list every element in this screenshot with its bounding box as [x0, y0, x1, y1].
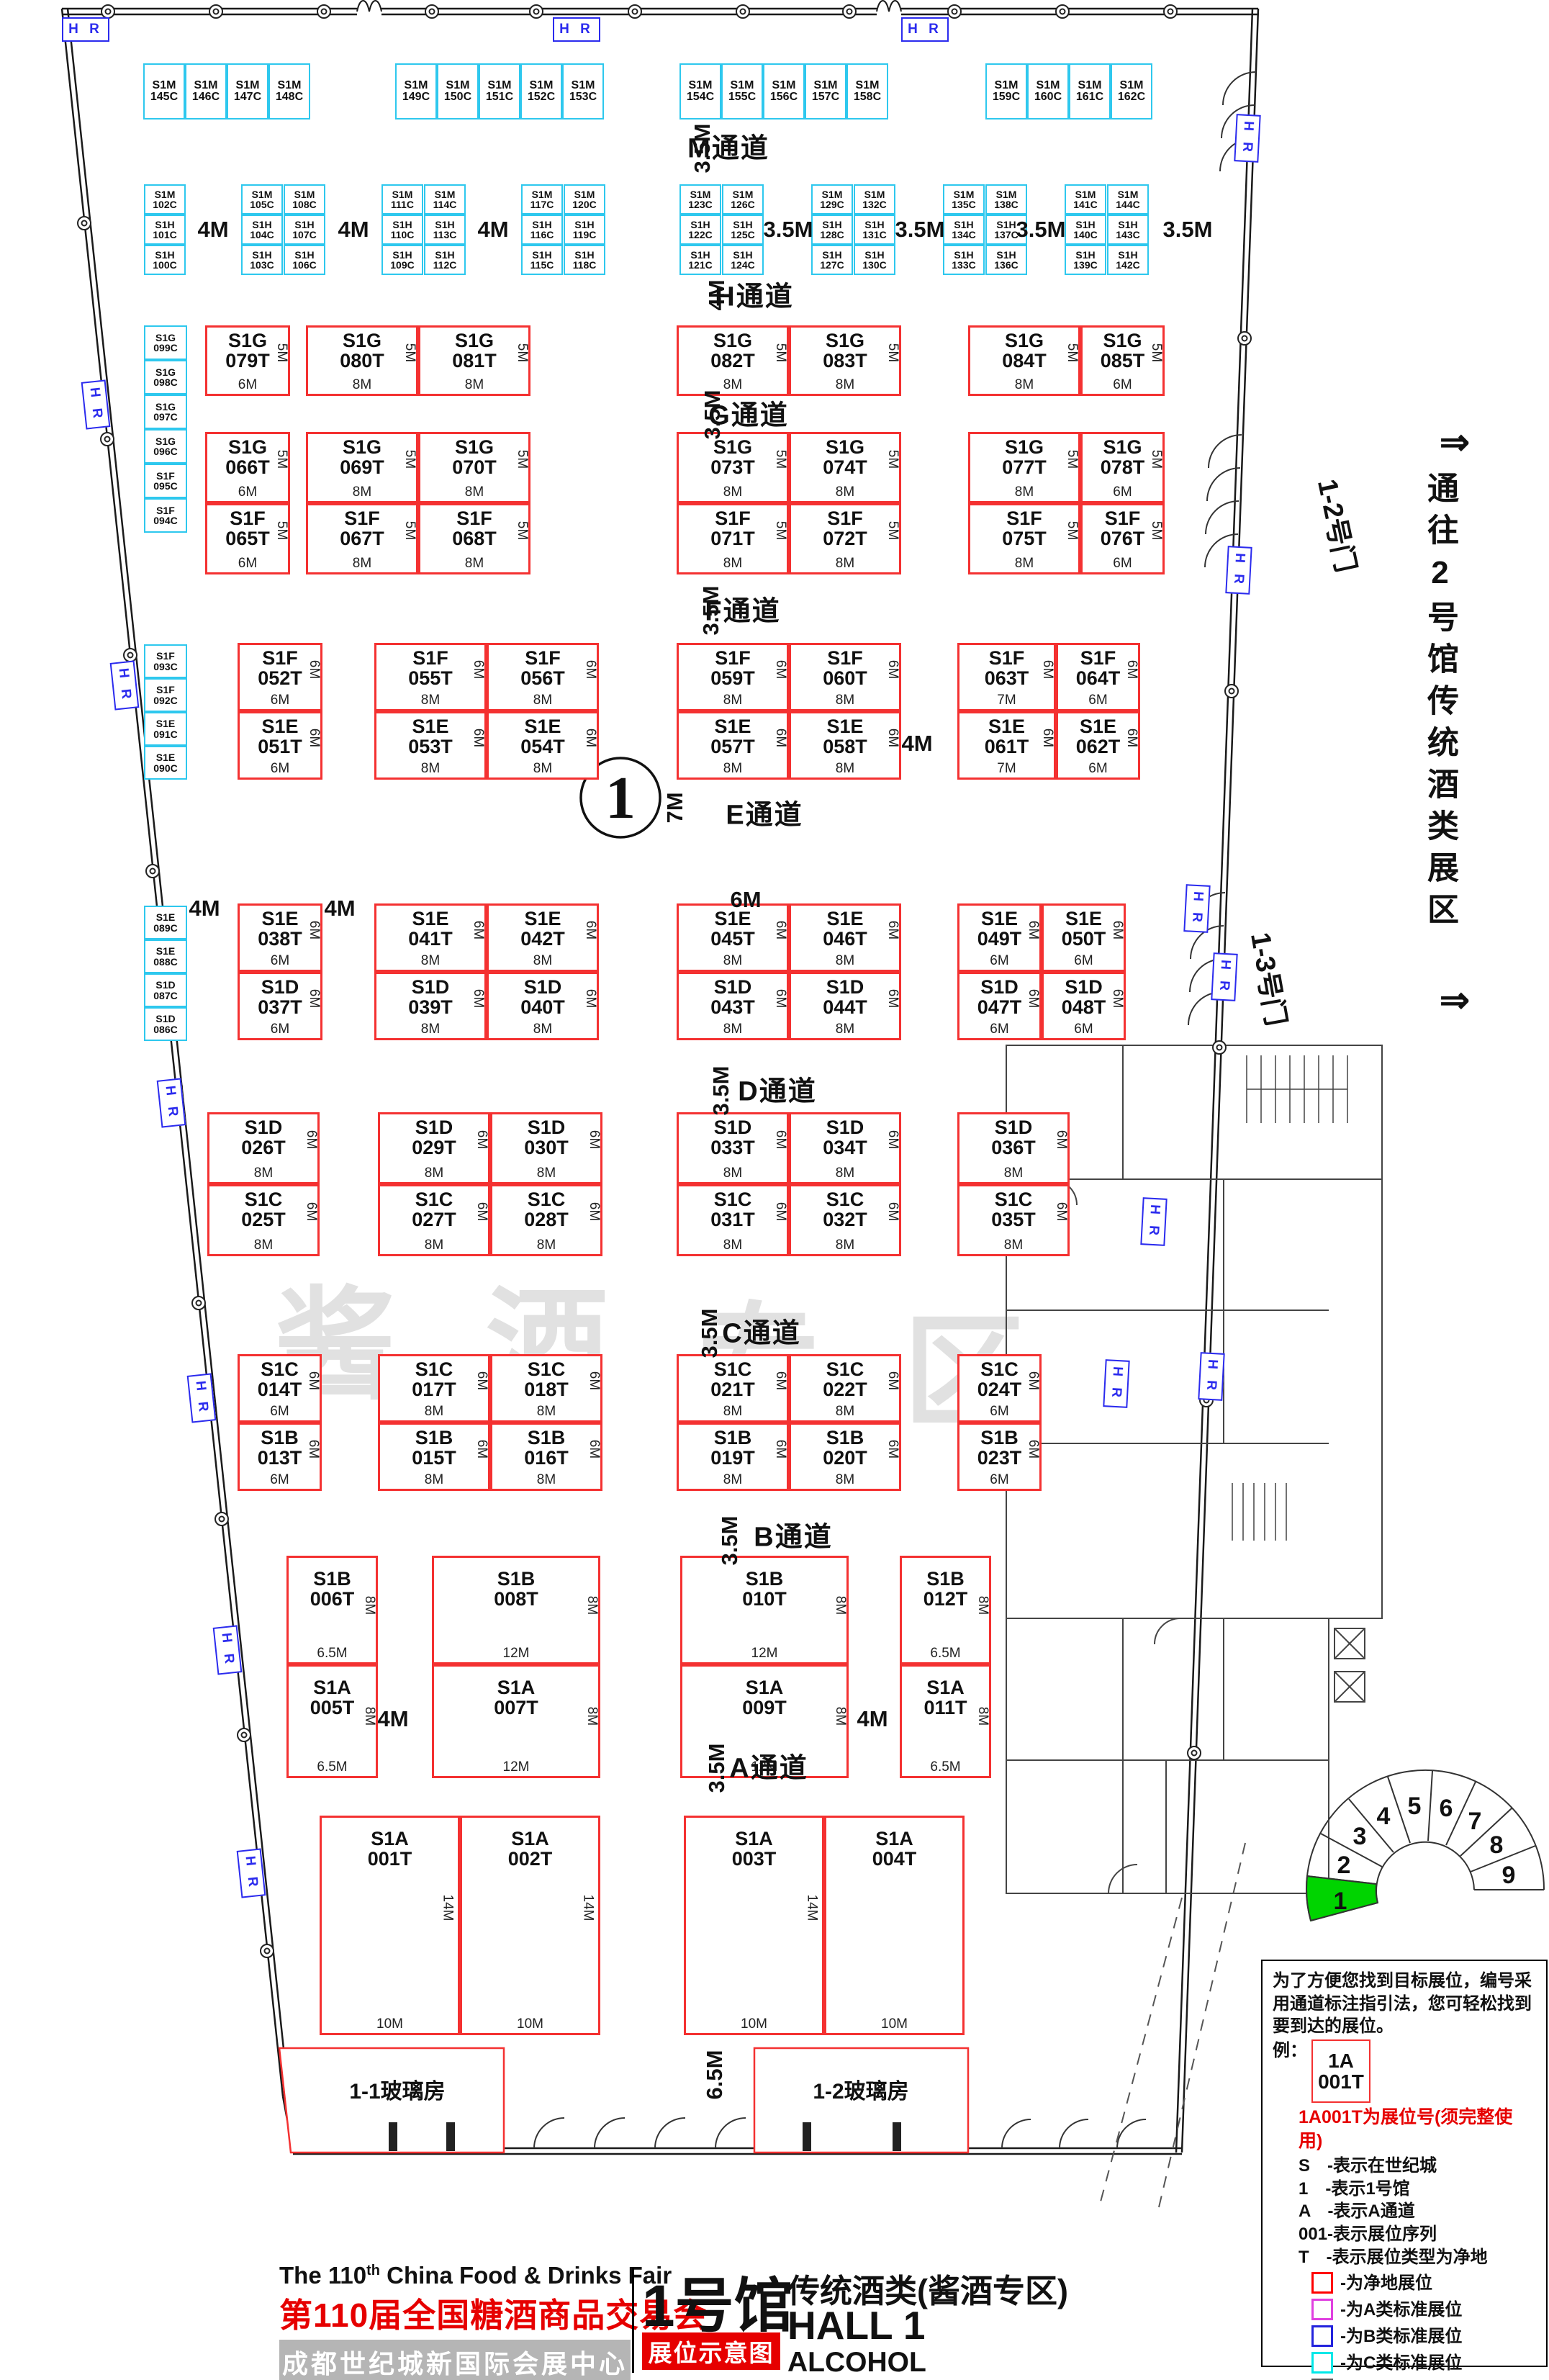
- dimension-label: 3.5M: [764, 217, 813, 243]
- fair-title-cn: 第110届全国糖酒商品交易会: [279, 2289, 631, 2337]
- dimension-label-vertical: 6.5M: [702, 2050, 728, 2100]
- dimension-label-vertical: 3.5M: [708, 1066, 734, 1116]
- fire-hydrant-hr-box: H R: [901, 17, 949, 42]
- dimension-label: 4M: [189, 896, 220, 921]
- fire-hydrant-hr-box: H R: [1183, 884, 1210, 933]
- dimension-label: 6M: [730, 887, 761, 913]
- dimension-label: 4M: [377, 1706, 408, 1732]
- fire-hydrant-hr-box: H R: [62, 17, 109, 42]
- aisle-label-E: E通道: [726, 793, 803, 832]
- fire-hydrant-hr-box: H R: [553, 17, 600, 42]
- fire-hydrant-hr-box: H R: [157, 1078, 186, 1127]
- dimension-label-vertical: 4M: [704, 279, 730, 310]
- hall-name-cn: 1号馆: [642, 2258, 793, 2343]
- dimension-label-vertical: 3.5M: [697, 1309, 723, 1358]
- legend-example-booth: 1A 001T: [1311, 2039, 1370, 2103]
- aisle-label-A: A通道: [729, 1746, 808, 1785]
- legend-def: S -表示在世纪城: [1299, 2155, 1536, 2178]
- dimension-label-vertical: 3.5M: [704, 1744, 730, 1793]
- gate-label: 1-3号门: [1243, 929, 1299, 1028]
- swatch-label: -为B类标准展位: [1340, 2325, 1462, 2348]
- dimension-label: 4M: [197, 217, 228, 243]
- swatch-label: -为A类标准展位: [1340, 2299, 1462, 2322]
- legend-box: 为了方便您找到目标展位，编号采用通道标注指引法，您可轻松找到要到达的展位。 例：…: [1261, 1960, 1548, 2367]
- fire-hydrant-hr-box: H R: [1234, 114, 1260, 163]
- legend-def: T -表示展位类型为净地: [1299, 2246, 1536, 2269]
- dimension-label: 4M: [338, 217, 369, 243]
- legend-intro: 为了方便您找到目标展位，编号采用通道标注指引法，您可轻松找到要到达的展位。: [1273, 1970, 1536, 2038]
- dimension-label: 4M: [324, 896, 355, 921]
- aisle-label-D: D通道: [738, 1069, 816, 1109]
- fire-hydrant-hr-box: H R: [1198, 1352, 1224, 1401]
- legend-example-code-1: 1A: [1328, 2050, 1354, 2071]
- title-divider: [632, 2268, 634, 2373]
- fire-hydrant-hr-box: H R: [110, 660, 140, 710]
- category-en: ALCOHOL: [787, 2347, 926, 2379]
- venue-name: 成都世纪城新国际会展中心: [279, 2340, 631, 2380]
- swatch-open-space: [1311, 2272, 1333, 2294]
- legend-example-code-2: 001T: [1318, 2071, 1364, 2092]
- dimension-label: 4M: [857, 1706, 888, 1732]
- fire-hydrant-hr-box: H R: [1211, 952, 1237, 1001]
- gate-label: 1-2号门: [1310, 475, 1368, 576]
- fire-hydrant-hr-box: H R: [187, 1373, 217, 1423]
- swatch-class-b: [1311, 2325, 1333, 2347]
- dimension-label: 3.5M: [1163, 217, 1213, 243]
- dimension-label: 4M: [901, 731, 932, 757]
- hall-name-en: HALL 1: [787, 2302, 926, 2348]
- dimension-label-vertical: 3.5M: [698, 586, 724, 636]
- title-left: The 110th China Food & Drinks Fair 第110届…: [279, 2262, 631, 2380]
- dimension-label-vertical: 3.5M: [690, 124, 715, 173]
- fire-hydrant-hr-box: H R: [1103, 1359, 1129, 1408]
- legend-def: 001-表示展位序列: [1299, 2223, 1536, 2246]
- swatch-label: -为净地展位: [1340, 2272, 1432, 2295]
- dimension-label: 3.5M: [1016, 217, 1066, 243]
- fair-title-en: The 110th China Food & Drinks Fair: [279, 2262, 631, 2289]
- map-type-badge: 展位示意图: [642, 2332, 780, 2370]
- fire-hydrant-hr-box: H R: [237, 1848, 266, 1898]
- dimension-label: 4M: [477, 217, 508, 243]
- fire-hydrant-hr-box: H R: [1225, 546, 1252, 595]
- fire-hydrant-hr-box: H R: [81, 379, 111, 429]
- dimension-label-vertical: 3.5M: [700, 390, 726, 440]
- swatch-class-a: [1311, 2299, 1333, 2320]
- fire-hydrant-hr-box: H R: [213, 1625, 243, 1674]
- swatch-label: -为C类标准展位: [1340, 2352, 1462, 2375]
- corridor-arrow-bottom: ⇒: [1440, 979, 1470, 1021]
- legend-def: 1 -表示1号馆: [1299, 2178, 1536, 2201]
- legend-def: A -表示A通道: [1299, 2200, 1536, 2223]
- glass-house-1-label: 1-1玻璃房: [349, 2073, 445, 2105]
- corridor-arrow-top: ⇒: [1440, 421, 1470, 463]
- dimension-label: 3.5M: [895, 217, 945, 243]
- dimension-label-vertical: 7M: [662, 792, 688, 823]
- legend-example-label: 例：: [1273, 2039, 1307, 2063]
- aisle-label-C: C通道: [722, 1311, 800, 1351]
- glass-house-2-label: 1-2玻璃房: [813, 2073, 908, 2105]
- swatch-class-c: [1311, 2352, 1333, 2374]
- corridor-note: 通往2号馆传统酒类展区: [1424, 472, 1455, 934]
- dimension-label-vertical: 3.5M: [717, 1516, 743, 1566]
- fire-hydrant-hr-box: H R: [1140, 1197, 1167, 1246]
- floor-plan-canvas: 酱 酒 专 区 1: [0, 0, 1549, 2380]
- legend-code-note: 1A001T为展位号(须完整使用): [1299, 2106, 1536, 2153]
- aisle-label-B: B通道: [754, 1515, 832, 1554]
